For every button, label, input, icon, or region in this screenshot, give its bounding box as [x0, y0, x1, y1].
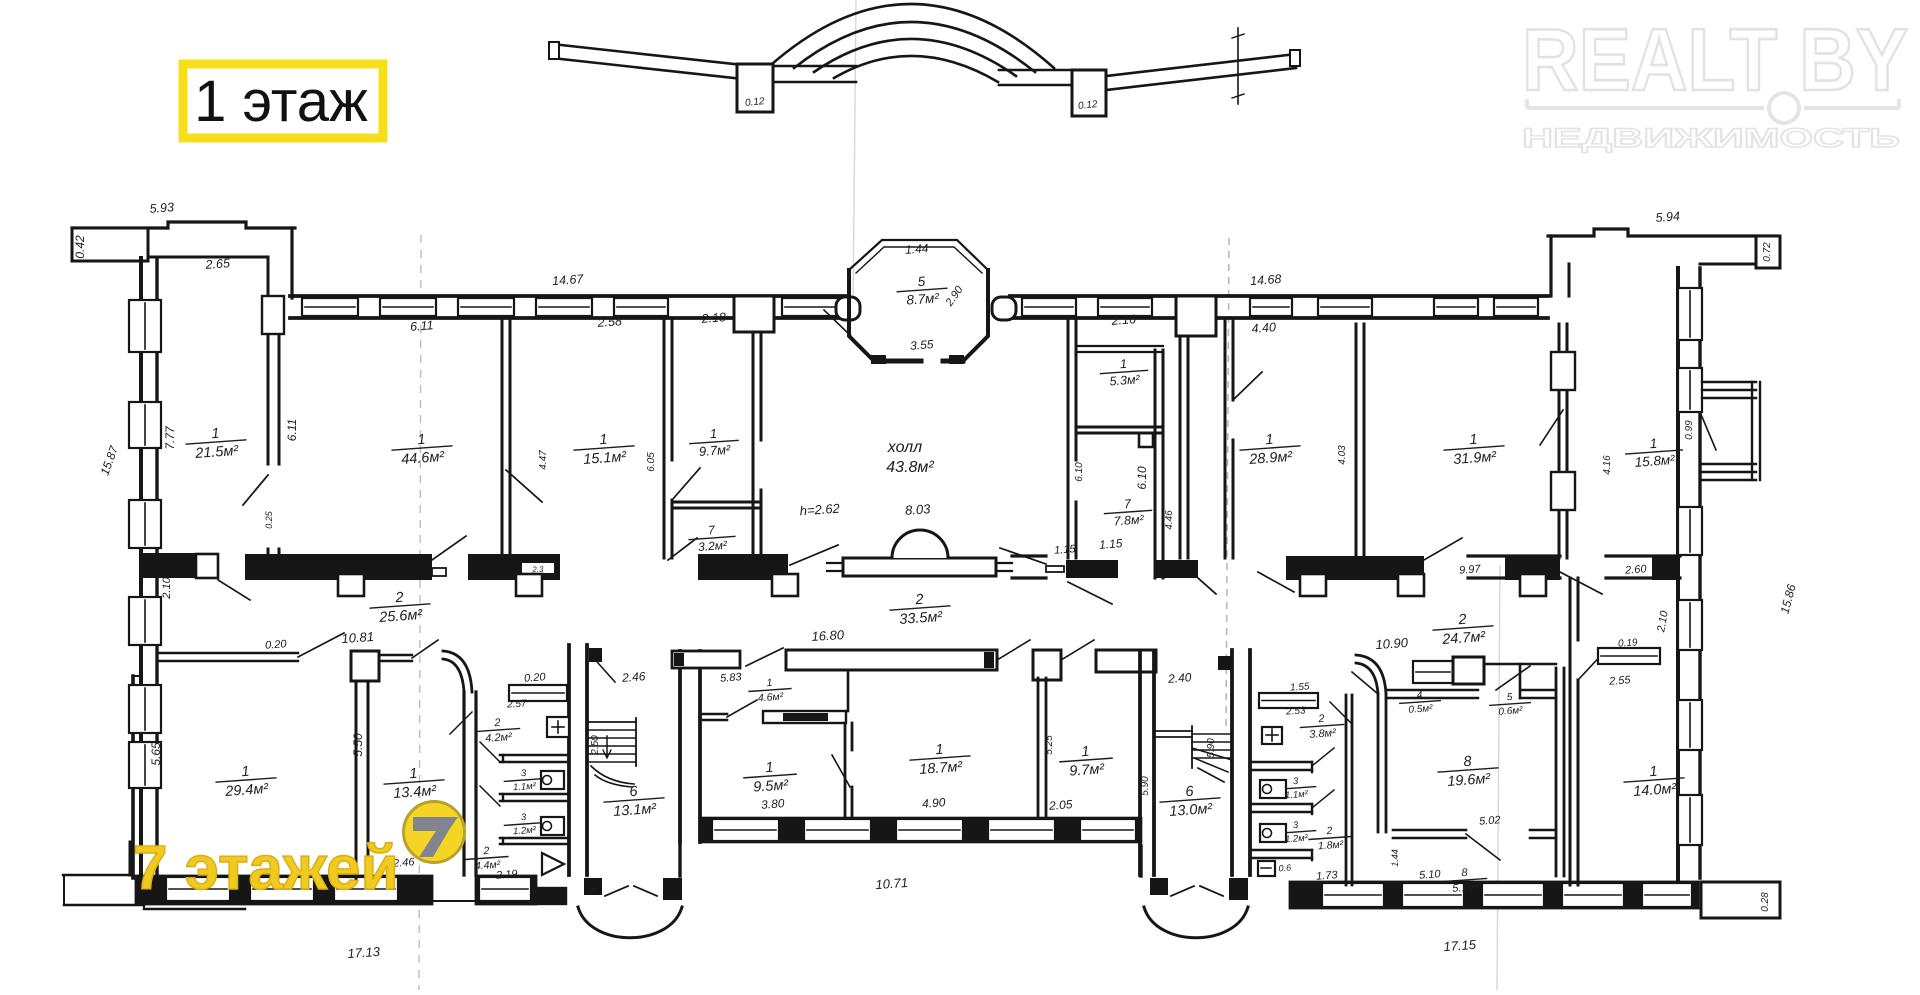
svg-text:2.50: 2.50 [590, 735, 601, 756]
svg-text:4.6м²: 4.6м² [757, 691, 784, 705]
svg-text:8.7м²: 8.7м² [906, 290, 940, 307]
svg-text:6.10: 6.10 [1074, 462, 1085, 482]
svg-text:19.6м²: 19.6м² [1447, 771, 1492, 790]
svg-text:0.25: 0.25 [264, 510, 274, 529]
svg-text:8.03: 8.03 [905, 501, 932, 518]
svg-text:0.19: 0.19 [1618, 637, 1639, 649]
svg-text:2: 2 [1457, 612, 1467, 629]
svg-text:4.40: 4.40 [1251, 320, 1276, 336]
svg-text:0.42: 0.42 [73, 235, 87, 259]
svg-text:10.71: 10.71 [875, 875, 909, 892]
svg-text:0.6м²: 0.6м² [1498, 705, 1523, 718]
svg-text:0.6: 0.6 [1278, 863, 1291, 874]
svg-text:5.90: 5.90 [1140, 776, 1151, 796]
svg-text:7.77: 7.77 [163, 425, 177, 450]
svg-text:0.12: 0.12 [744, 96, 765, 109]
svg-text:29.4м²: 29.4м² [224, 781, 270, 800]
svg-text:REALT BY: REALT BY [1522, 10, 1908, 109]
svg-text:1.73: 1.73 [1316, 869, 1339, 883]
svg-text:4.03: 4.03 [1337, 445, 1348, 465]
svg-text:43.8м²: 43.8м² [886, 459, 934, 476]
svg-text:15.8м²: 15.8м² [1634, 452, 1675, 470]
svg-text:1.44: 1.44 [1390, 849, 1400, 867]
svg-text:1: 1 [1265, 432, 1274, 449]
svg-text:2.60: 2.60 [1624, 563, 1648, 577]
svg-text:6.11: 6.11 [285, 419, 299, 441]
svg-text:1.15: 1.15 [1054, 543, 1077, 557]
svg-text:1.44: 1.44 [905, 241, 930, 257]
svg-text:2: 2 [482, 845, 490, 857]
svg-text:НЕДВИЖИМОСТЬ: НЕДВИЖИМОСТЬ [1522, 123, 1900, 153]
svg-text:3.2м²: 3.2м² [698, 538, 729, 554]
svg-text:1: 1 [766, 677, 773, 689]
svg-text:21.5м²: 21.5м² [194, 443, 240, 462]
svg-text:13.1м²: 13.1м² [613, 801, 658, 820]
svg-text:5.02: 5.02 [1479, 814, 1501, 827]
svg-text:5.94: 5.94 [1655, 209, 1680, 225]
svg-text:2: 2 [493, 717, 501, 729]
svg-text:0.5м²: 0.5м² [1408, 703, 1433, 716]
svg-text:3.80: 3.80 [761, 796, 786, 812]
svg-text:1.1м²: 1.1м² [1285, 789, 1309, 802]
svg-text:2: 2 [394, 590, 404, 607]
svg-text:7.8м²: 7.8м² [1113, 512, 1145, 528]
svg-text:0.28: 0.28 [1760, 892, 1771, 912]
svg-text:2: 2 [914, 592, 924, 609]
svg-text:1.2м²: 1.2м² [1285, 833, 1309, 846]
svg-text:1.1м²: 1.1м² [513, 781, 537, 794]
svg-text:1.2м²: 1.2м² [513, 825, 537, 838]
svg-text:2.65: 2.65 [204, 256, 230, 272]
svg-text:25.6м²: 25.6м² [378, 607, 424, 626]
svg-text:18.7м²: 18.7м² [919, 759, 964, 778]
svg-text:1 этаж: 1 этаж [194, 69, 368, 134]
svg-text:15.1м²: 15.1м² [583, 449, 628, 468]
svg-text:8: 8 [589, 884, 594, 894]
svg-text:0.12: 0.12 [1077, 99, 1098, 112]
svg-text:9.97: 9.97 [1459, 563, 1482, 577]
svg-text:2: 2 [1325, 825, 1333, 837]
svg-text:1: 1 [211, 426, 220, 443]
svg-text:13.0м²: 13.0м² [1169, 801, 1214, 820]
svg-text:5.10: 5.10 [1419, 868, 1442, 882]
svg-text:8: 8 [1463, 754, 1472, 771]
svg-text:6.05: 6.05 [646, 452, 657, 472]
svg-text:14.0м²: 14.0м² [1633, 781, 1678, 800]
svg-text:6.10: 6.10 [1135, 466, 1149, 490]
svg-text:1: 1 [1649, 436, 1658, 451]
svg-text:5.1м²: 5.1м² [1452, 881, 1480, 895]
svg-text:2.10: 2.10 [161, 576, 173, 599]
svg-text:4.16: 4.16 [1602, 455, 1613, 475]
svg-text:28.9м²: 28.9м² [1248, 449, 1294, 468]
svg-text:9.7м²: 9.7м² [1069, 761, 1106, 779]
svg-text:5.50: 5.50 [351, 733, 365, 757]
svg-text:2.19: 2.19 [495, 868, 518, 882]
svg-text:1: 1 [1649, 764, 1658, 781]
svg-text:2.58: 2.58 [596, 314, 622, 330]
svg-text:44.6м²: 44.6м² [401, 449, 446, 468]
svg-text:9.5м²: 9.5м² [753, 777, 790, 795]
svg-text:13.4м²: 13.4м² [393, 783, 438, 802]
svg-text:10.81: 10.81 [341, 629, 375, 646]
svg-text:4.90: 4.90 [922, 795, 947, 811]
svg-text:6.11: 6.11 [410, 318, 434, 334]
svg-text:17.13: 17.13 [347, 944, 381, 961]
svg-text:0.20: 0.20 [265, 638, 288, 652]
svg-text:2: 2 [1317, 713, 1325, 725]
svg-text:14.67: 14.67 [552, 272, 585, 288]
svg-text:24.7м²: 24.7м² [1441, 629, 1487, 648]
svg-text:2.53: 2.53 [1285, 705, 1307, 717]
svg-text:0.72: 0.72 [1762, 242, 1773, 262]
svg-text:5.83: 5.83 [720, 671, 743, 685]
svg-text:1.55: 1.55 [1290, 681, 1311, 693]
svg-text:2.05: 2.05 [1048, 797, 1074, 813]
svg-text:холл: холл [887, 439, 922, 456]
svg-text:9.7м²: 9.7м² [698, 442, 731, 459]
svg-text:2.16: 2.16 [1110, 312, 1136, 328]
svg-text:3.8м²: 3.8м² [1309, 727, 1337, 741]
svg-text:2.18: 2.18 [700, 310, 726, 326]
svg-text:1: 1 [935, 742, 944, 759]
svg-text:1.15: 1.15 [1099, 536, 1124, 552]
svg-text:1: 1 [1119, 357, 1127, 371]
svg-text:1: 1 [417, 432, 426, 449]
svg-text:7 этажей: 7 этажей [133, 834, 399, 903]
svg-text:4.2м²: 4.2м² [485, 731, 513, 745]
svg-text:0.99: 0.99 [1684, 420, 1695, 440]
svg-text:33.5м²: 33.5м² [899, 609, 944, 628]
svg-text:1: 1 [765, 760, 774, 777]
svg-text:14.68: 14.68 [1250, 272, 1282, 288]
svg-text:17.15: 17.15 [1443, 937, 1477, 954]
svg-text:1: 1 [409, 766, 418, 783]
svg-text:2.57: 2.57 [506, 698, 528, 710]
svg-text:1: 1 [709, 426, 717, 441]
svg-text:10.90: 10.90 [1375, 635, 1409, 652]
svg-text:5.65: 5.65 [149, 742, 163, 766]
svg-text:4.47: 4.47 [538, 450, 549, 470]
svg-text:1: 1 [1081, 744, 1090, 761]
svg-text:2.55: 2.55 [1608, 674, 1632, 688]
svg-text:5.93: 5.93 [149, 200, 174, 216]
svg-text:3.55: 3.55 [910, 337, 935, 353]
svg-text:5.3м²: 5.3м² [1109, 372, 1141, 388]
svg-text:1.8м²: 1.8м² [1317, 839, 1344, 853]
svg-text:2.46: 2.46 [621, 669, 647, 685]
svg-text:1: 1 [241, 764, 250, 781]
svg-text:2.40: 2.40 [1167, 670, 1193, 686]
svg-text:4.46: 4.46 [1164, 510, 1175, 530]
svg-text:31.9м²: 31.9м² [1453, 449, 1498, 468]
svg-text:0.20: 0.20 [524, 671, 547, 685]
svg-text:1: 1 [599, 432, 608, 449]
svg-text:16.80: 16.80 [811, 627, 845, 644]
svg-text:5.25: 5.25 [1044, 735, 1055, 755]
svg-text:1: 1 [1469, 432, 1478, 449]
svg-text:h=2.62: h=2.62 [799, 501, 841, 519]
